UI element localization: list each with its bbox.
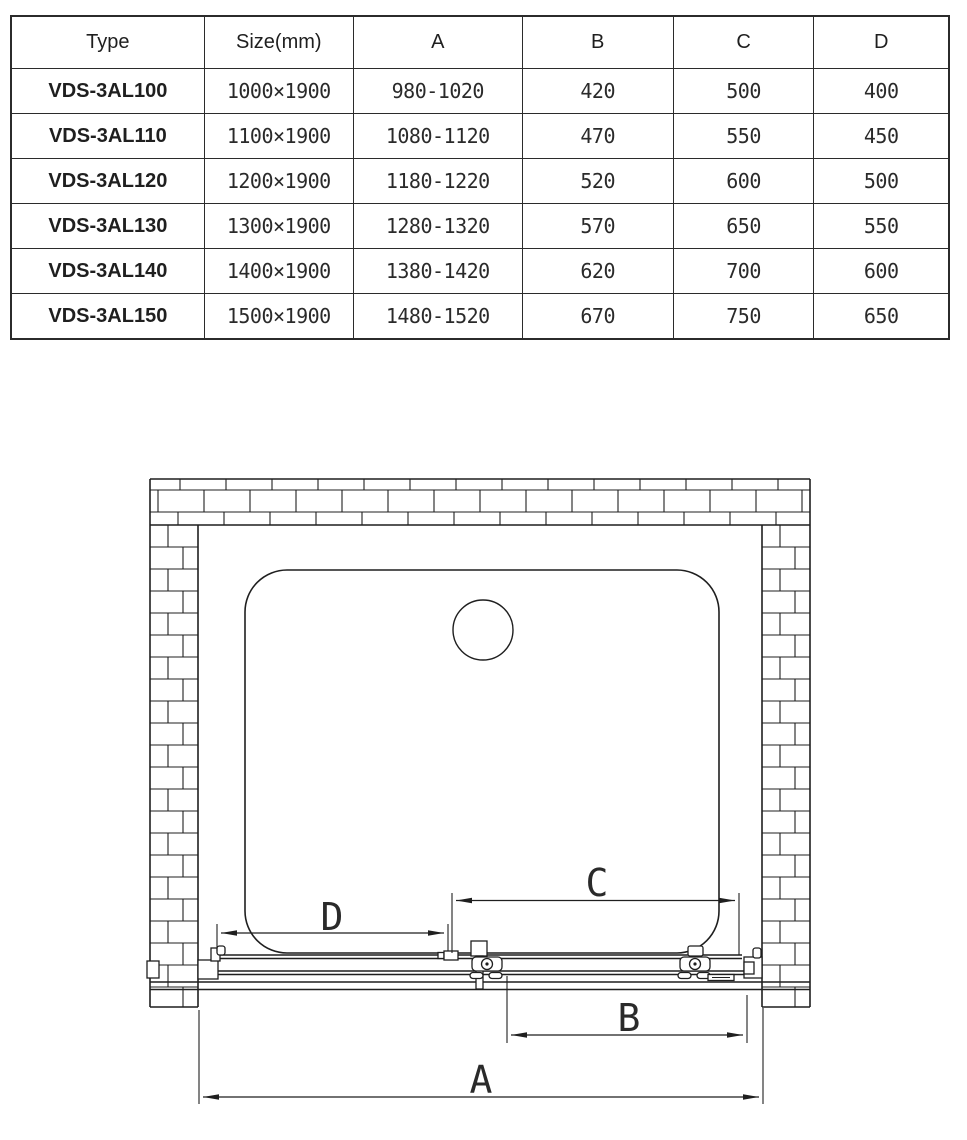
spec-sheet-page: TypeSize(mm)ABCD VDS-3AL1001000×1900980-…: [0, 0, 967, 1140]
left-wall-profile: [147, 946, 225, 979]
technical-drawing: D C B A: [0, 0, 967, 1140]
center-roller: [470, 957, 502, 979]
door-handle: [708, 975, 734, 981]
right-roller: [678, 946, 710, 979]
dim-a-label: A: [470, 1058, 493, 1102]
shower-tray: [245, 570, 719, 953]
dim-c-label: C: [586, 861, 609, 905]
door-track-assembly: [147, 941, 810, 990]
right-wall-profile: [744, 948, 762, 978]
drain-circle: [453, 600, 513, 660]
dim-b-label: B: [618, 996, 641, 1040]
dim-d-label: D: [321, 895, 344, 939]
